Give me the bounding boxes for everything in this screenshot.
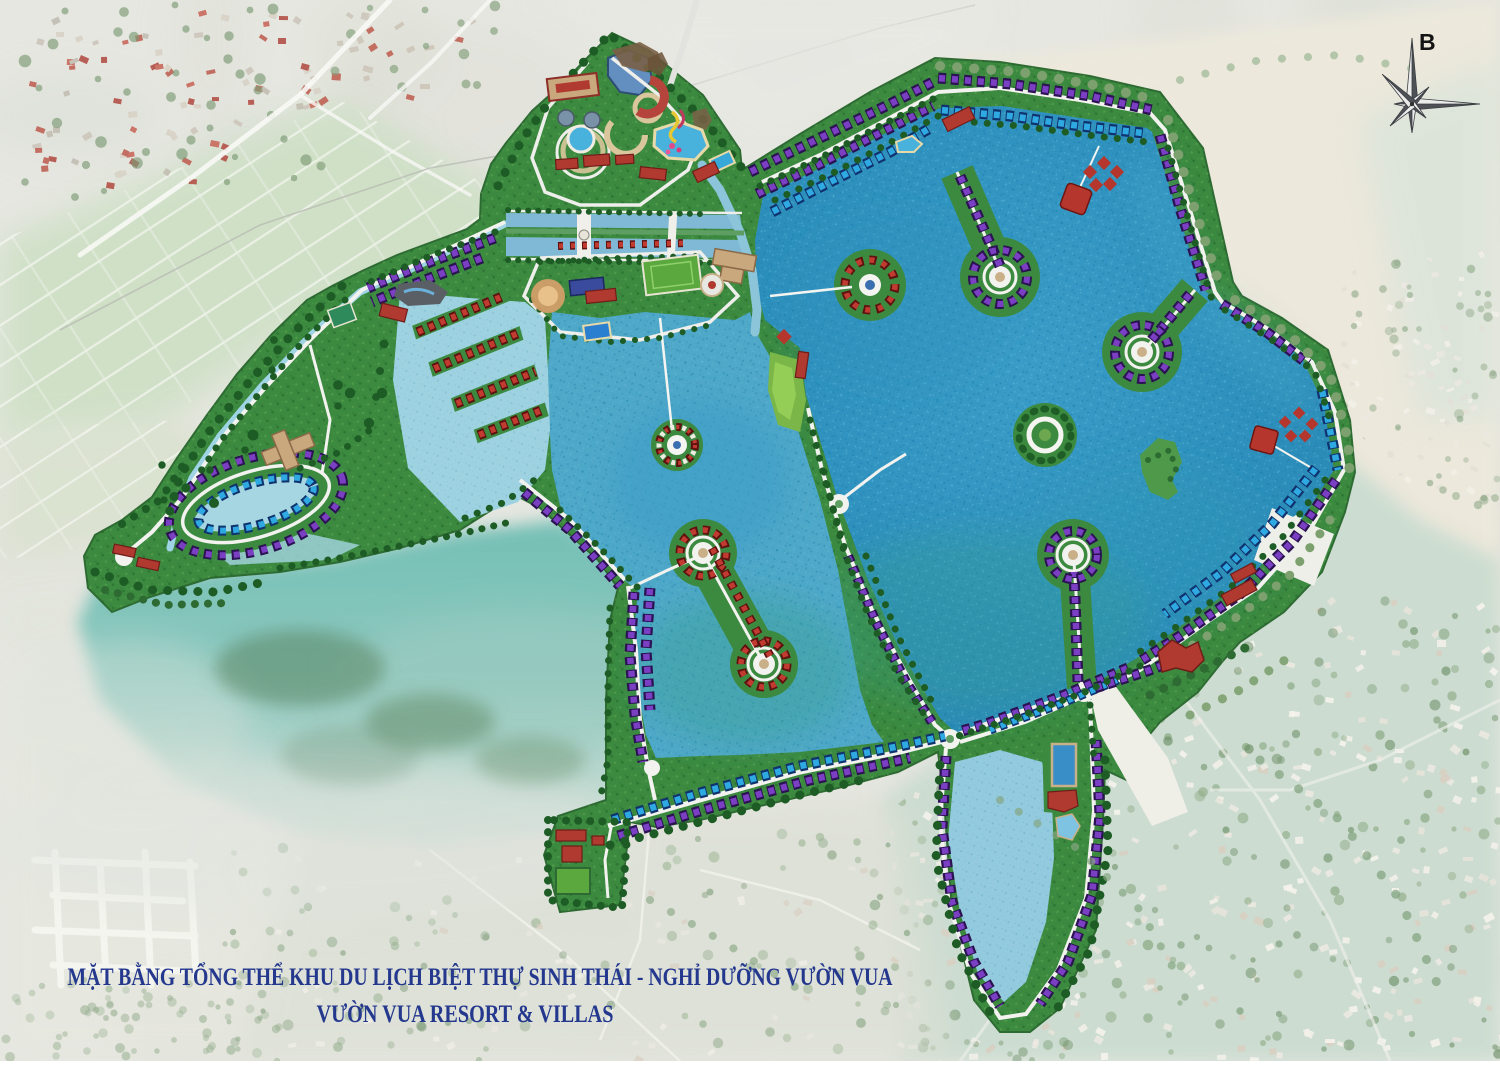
svg-text:VƯỜN VUA RESORT & VILLAS: VƯỜN VUA RESORT & VILLAS xyxy=(317,999,614,1028)
svg-text:B: B xyxy=(1419,29,1436,55)
svg-text:MẶT BẰNG TỔNG THỂ KHU DU LỊCH: MẶT BẰNG TỔNG THỂ KHU DU LỊCH BIỆT THỰ S… xyxy=(68,962,893,991)
